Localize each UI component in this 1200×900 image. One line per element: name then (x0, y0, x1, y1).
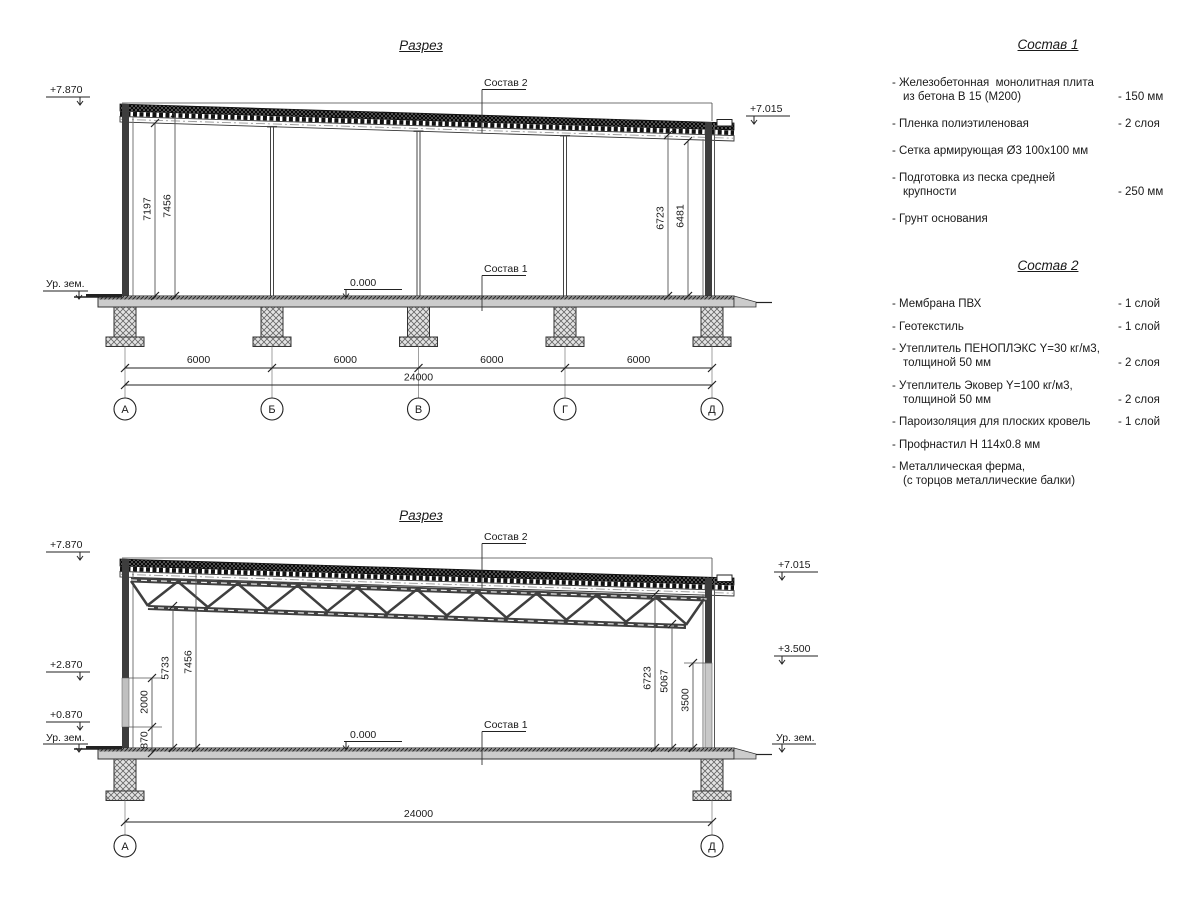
dim-5067: 5067 (659, 669, 671, 693)
grid-label-b: Б (268, 404, 275, 416)
sostav2-title: Состав 2 (892, 258, 1200, 273)
elev2-7870: +7.870 (50, 539, 83, 551)
ground-level-left-2: Ур. зем. (46, 732, 85, 744)
list-item: - Профнастил Н 114х0.8 мм (892, 438, 1200, 452)
elev2-3500: +3.500 (778, 643, 811, 655)
item-value: - 1 слой (1118, 320, 1200, 334)
dim-2000: 2000 (139, 690, 151, 714)
list-item: - Утеплитель ПЕНОПЛЭКС Y=30 кг/м3, толщи… (892, 342, 1200, 370)
dim-span-3: 6000 (480, 354, 504, 366)
item-text: - Грунт основания (892, 212, 1118, 226)
ref-sostav2-1: Состав 2 (484, 77, 528, 89)
list-item: - Пароизоляция для плоских кровель - 1 с… (892, 415, 1200, 429)
ref-sostav2-2: Состав 2 (484, 531, 528, 543)
grid-label-a: А (121, 404, 129, 416)
list-item: - Сетка армирующая Ø3 100х100 мм (892, 144, 1200, 158)
foundations-2 (106, 759, 731, 801)
ref-sostav1-2: Состав 1 (484, 719, 528, 731)
section-1-title: Разрез (341, 38, 501, 53)
item-text: - Сетка армирующая Ø3 100х100 мм (892, 144, 1118, 158)
list-item: - Подготовка из песка средней крупности … (892, 171, 1200, 199)
list-item: - Пленка полиэтиленовая - 2 слоя (892, 117, 1200, 131)
elev-0000: 0.000 (350, 277, 376, 289)
sostav1-title: Состав 1 (892, 37, 1200, 52)
dim-total-1: 24000 (404, 372, 433, 384)
item-text: - Металлическая ферма, (с торцов металли… (892, 460, 1118, 488)
item-text: - Утеплитель Эковер Y=100 кг/м3, толщино… (892, 379, 1118, 407)
wall-left-2 (122, 559, 133, 748)
elev2-0870: +0.870 (50, 709, 83, 721)
list-item: - Мембрана ПВХ - 1 слой (892, 297, 1200, 311)
ground-level-left-1: Ур. зем. (46, 278, 85, 290)
item-value: - 2 слоя (1118, 117, 1200, 131)
grid-bubbles-1: А Б В Г Д (114, 398, 723, 420)
foundations-1 (106, 307, 731, 347)
wall-left-1 (122, 104, 133, 296)
list-item: - Утеплитель Эковер Y=100 кг/м3, толщино… (892, 379, 1200, 407)
grid-label-g: Г (562, 404, 568, 416)
dim-870: 870 (139, 731, 151, 749)
elev2-2870: +2.870 (50, 659, 83, 671)
dim-total-2: 24000 (404, 808, 433, 820)
ref-sostav1-1: Состав 1 (484, 263, 528, 275)
item-text: - Профнастил Н 114х0.8 мм (892, 438, 1118, 452)
dim-7456-2: 7456 (183, 650, 195, 674)
dim-span-4: 6000 (627, 354, 651, 366)
section-2-drawing: 24000 А Д 2000 870 5733 7456 6723 (43, 531, 818, 857)
sostav1-panel: Состав 1 - Железобетонная монолитная пли… (892, 37, 1200, 239)
elev-7015: +7.015 (750, 103, 783, 115)
list-item: - Железобетонная монолитная плита из бет… (892, 76, 1200, 104)
list-item: - Металлическая ферма, (с торцов металли… (892, 460, 1200, 488)
dim-6481: 6481 (675, 204, 687, 228)
item-value: - 1 слой (1118, 415, 1200, 429)
ref-labels-2: Состав 2 Состав 1 (482, 531, 528, 765)
item-text: - Утеплитель ПЕНОПЛЭКС Y=30 кг/м3, толщи… (892, 342, 1118, 370)
list-item: - Геотекстиль - 1 слой (892, 320, 1200, 334)
dim-7456: 7456 (162, 194, 174, 218)
dim-6723-2: 6723 (642, 666, 654, 690)
ref-labels-1: Состав 2 Состав 1 (482, 77, 528, 311)
dim-span-2: 6000 (334, 354, 358, 366)
dim-5733: 5733 (160, 656, 172, 680)
item-text: - Геотекстиль (892, 320, 1118, 334)
item-text: - Пленка полиэтиленовая (892, 117, 1118, 131)
grid-bubbles-2: А Д (114, 835, 723, 857)
item-text: - Железобетонная монолитная плита из бет… (892, 76, 1118, 104)
elev-7870: +7.870 (50, 84, 83, 96)
dim-span-1: 6000 (187, 354, 211, 366)
item-value: - 250 мм (1118, 185, 1200, 199)
item-text: - Подготовка из песка средней крупности (892, 171, 1118, 199)
list-item: - Грунт основания (892, 212, 1200, 226)
elev2-7015: +7.015 (778, 559, 811, 571)
grid-label-d: Д (708, 404, 716, 416)
section-2-title: Разрез (341, 508, 501, 523)
item-text: - Пароизоляция для плоских кровель (892, 415, 1118, 429)
drawing-sheet: 6000 6000 6000 6000 24000 А Б В Г Д 7197… (0, 0, 1200, 900)
grid2-label-d: Д (708, 841, 716, 853)
floor-slab-2 (74, 746, 772, 759)
item-value: - 150 мм (1118, 90, 1200, 104)
dim-7197: 7197 (142, 197, 154, 221)
item-text: - Мембрана ПВХ (892, 297, 1118, 311)
grid-label-v: В (415, 404, 422, 416)
dim-3500: 3500 (680, 688, 692, 712)
item-value: - 2 слоя (1118, 356, 1200, 370)
item-value: - 2 слоя (1118, 393, 1200, 407)
roof-assembly-1 (120, 104, 734, 141)
dim-6723: 6723 (655, 206, 667, 230)
ground-level-right-2: Ур. зем. (776, 732, 815, 744)
elev2-0000: 0.000 (350, 729, 376, 741)
h-dims-2: 24000 (121, 808, 716, 826)
section-1-drawing: 6000 6000 6000 6000 24000 А Б В Г Д 7197… (43, 77, 790, 420)
wall-right-1 (703, 122, 715, 296)
grid2-label-a: А (121, 841, 129, 853)
sostav2-panel: Состав 2 - Мембрана ПВХ - 1 слой - Геоте… (892, 258, 1200, 497)
item-value: - 1 слой (1118, 297, 1200, 311)
